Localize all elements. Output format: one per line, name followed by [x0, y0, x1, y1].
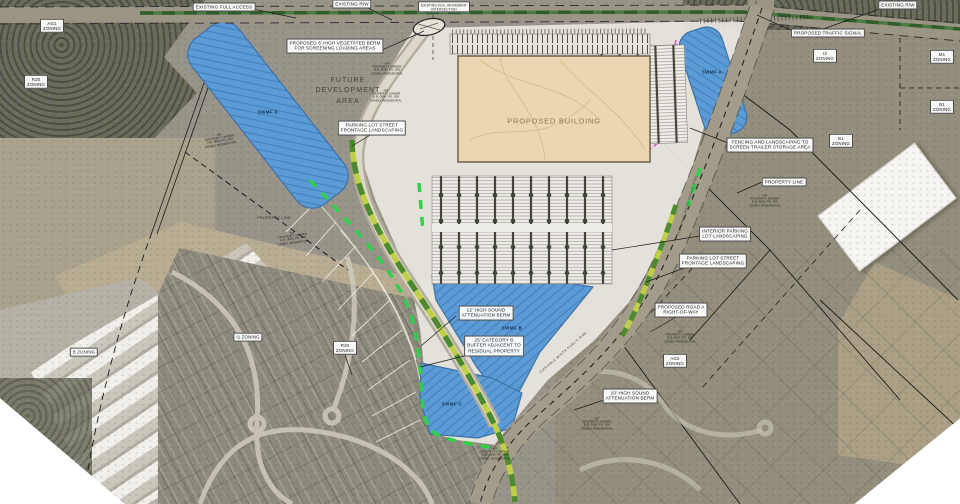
- label-existing-full-access: EXISTING FULL ACCESS: [193, 3, 256, 12]
- zoning-m1: M1 ZONING: [930, 50, 954, 64]
- zoning-i1: I1 ZONING: [233, 333, 262, 342]
- zoning-b1-mid: B1 ZONING: [829, 134, 853, 148]
- label-parking-frontage-se: PARKING LOT STREET FRONTAGE LANDSCAPING: [679, 254, 747, 269]
- label-existing-rw-left: EXISTING R/W: [332, 0, 371, 8]
- owner-note: N/F PROPERTY OWNER D.B. 0000, PG. 000 ZO…: [368, 89, 404, 104]
- label-swmf-d: SWMF D: [256, 109, 281, 116]
- zoning-b: B ZONING: [70, 348, 98, 357]
- label-buffer-25: 25' CATEGORY B BUFFER ADJACENT TO RESIDU…: [464, 336, 524, 357]
- zoning-r20-left: R20 ZONING: [24, 75, 48, 89]
- label-interior-parking: INTERIOR PARKING LOT LANDSCAPING: [699, 227, 751, 242]
- label-swmf-b: SWMF B: [500, 325, 525, 332]
- label-intersection-note: EXISTING FULL MOVEMENT INTERSECTION: [418, 1, 470, 12]
- zoning-ag1: AG1 ZONING: [40, 19, 64, 33]
- label-proposed-road-a: PROPOSED ROAD A RIGHT-OF-WAY: [655, 303, 708, 318]
- label-sound-berm-10: 10' HIGH SOUND ATTENUATION BERM: [603, 389, 658, 404]
- zoning-r20-subdivision: R20 ZONING: [333, 341, 357, 355]
- truck-dock-strip: [450, 34, 650, 54]
- owner-note: N/F PROPERTY OWNER D.B. 0000, PG. 000 ZO…: [579, 417, 615, 432]
- label-swmf-a: SWMF A: [700, 69, 724, 76]
- zoning-ag2: AG2 ZONING: [663, 354, 687, 368]
- label-proposed-building: PROPOSED BUILDING: [505, 116, 603, 127]
- label-existing-rw-right: EXISTING R/W: [878, 1, 917, 10]
- label-fencing-landscaping: FENCING AND LANDSCAPING TO SCREEN TRAILE…: [727, 138, 814, 153]
- owner-note: N/F PROPERTY OWNER D.B. 0000, PG. 000 ZO…: [477, 447, 513, 462]
- proposed-building-footprint: [458, 56, 650, 162]
- owner-note: N/F PROPERTY OWNER D.B. 0000, PG. 000 ZO…: [747, 194, 783, 209]
- owner-note: N/F PROPERTY OWNER D.B. 0000, PG. 000 ZO…: [662, 330, 698, 345]
- label-vegetated-berm: PROPOSED 6' HIGH VEGETATED BERM FOR SCRE…: [286, 39, 383, 54]
- zoning-i2: I2 ZONING: [813, 49, 837, 63]
- label-property-line-left: PROPERTY LINE: [255, 214, 293, 220]
- label-sound-berm-12: 12' HIGH SOUND ATTENUATION BERM: [459, 306, 514, 321]
- owner-note: N/F PROPERTY OWNER D.B. 0000, PG. 000 ZO…: [369, 62, 405, 77]
- plan-linework: [0, 0, 960, 504]
- label-proposed-traffic-signal: PROPOSED TRAFFIC SIGNAL: [791, 29, 865, 38]
- site-plan-screenshot: EXISTING FULL ACCESS EXISTING R/W EXISTI…: [0, 0, 960, 504]
- label-parking-frontage-nw: PARKING LOT STREET FRONTAGE LANDSCAPING: [338, 121, 406, 136]
- label-property-line-right: PROPERTY LINE: [762, 178, 807, 187]
- label-swmf-c: SWMF C: [440, 401, 465, 408]
- zoning-b1-right: B1 ZONING: [930, 100, 954, 114]
